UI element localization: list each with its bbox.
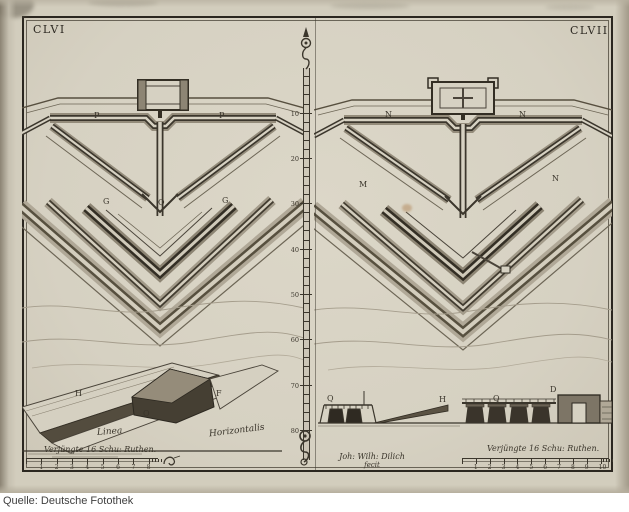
fort-plan-left	[22, 56, 304, 390]
plan-letter: P	[94, 112, 99, 120]
page-edge-left	[0, 0, 16, 493]
plan-letter: M	[359, 181, 367, 189]
rust-stain	[402, 204, 412, 212]
rampart-profile-section	[316, 383, 462, 455]
engraver-signature: Joh: Wilh: Dilich fecit	[330, 452, 414, 469]
scale-left-caption: Verjüngte 16 Schu: Ruthen.	[44, 445, 156, 454]
plan-letter: O	[143, 410, 150, 418]
plan-letter: P	[219, 112, 224, 120]
signature-name: Joh: Wilh: Dilich	[330, 452, 414, 461]
plan-letter: Q	[493, 395, 500, 403]
archive-caption-strip: Quelle: Deutsche Fotothek	[0, 493, 629, 512]
scale-bar-right: 12345678910	[462, 458, 609, 472]
page-number-left: CLVI	[33, 23, 66, 36]
plan-letter: G	[222, 197, 228, 205]
plan-letter: F	[216, 390, 222, 398]
scanned-engraving-page: CLVI CLVII	[0, 0, 629, 512]
scale-left-ornament-icon	[162, 452, 182, 470]
page-edge-top	[0, 0, 629, 7]
plan-letter: N	[552, 175, 559, 183]
plan-letter: D	[550, 386, 556, 394]
fort-plan-right	[314, 56, 612, 390]
page-number-right: CLVII	[570, 24, 609, 37]
page-edge-bottom	[0, 485, 629, 493]
plan-letter: N	[385, 111, 392, 119]
source-caption: Quelle: Deutsche Fotothek	[3, 495, 133, 507]
plan-letter: Q	[158, 199, 165, 207]
signature-fecit: fecit	[330, 461, 414, 469]
plan-letter: Q	[327, 395, 334, 403]
plan-letter: G	[103, 198, 109, 206]
ruler-bottom-finial-icon	[294, 428, 316, 468]
paper-scan: CLVI CLVII	[0, 0, 629, 493]
page-edge-right	[615, 0, 629, 493]
plan-letter: H	[439, 396, 446, 404]
ruler-top-finial-icon	[297, 25, 315, 71]
plan-letter: N	[519, 111, 526, 119]
scale-right-caption: Verjüngte 16 Schu: Ruthen.	[487, 444, 599, 453]
plan-letter: H	[75, 390, 82, 398]
scale-bar-left: 12345678	[26, 458, 158, 472]
label-linea: Linea	[97, 427, 123, 438]
